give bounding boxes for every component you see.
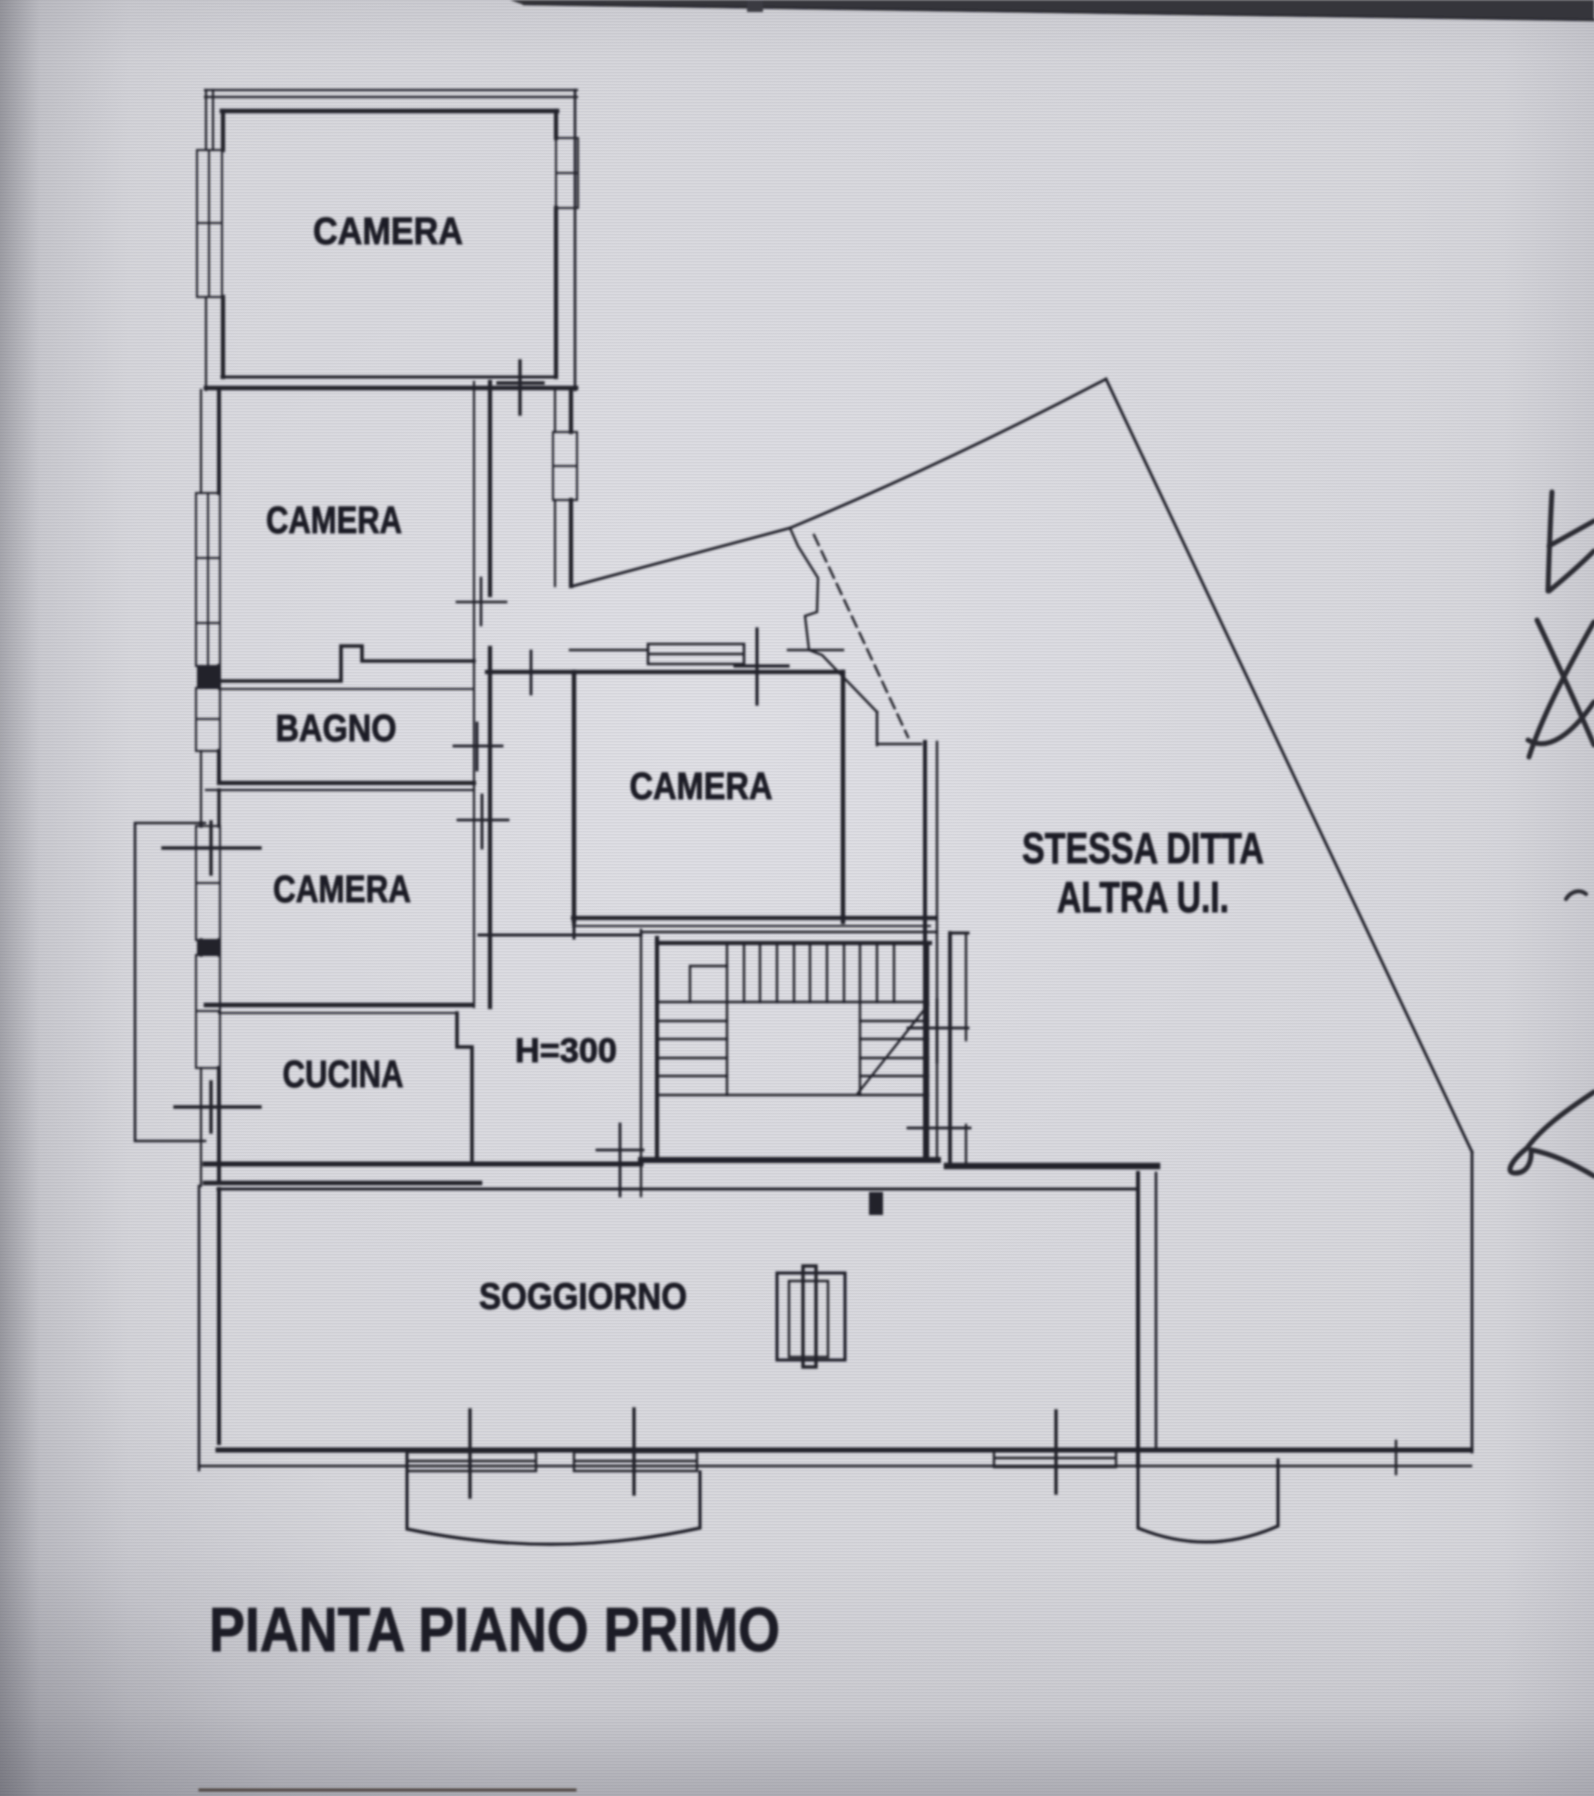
- svg-text:H=300: H=300: [515, 1032, 617, 1070]
- svg-text:ALTRA U.I.: ALTRA U.I.: [1057, 873, 1229, 922]
- svg-text:PIANTA PIANO PRIMO: PIANTA PIANO PRIMO: [209, 1596, 780, 1665]
- svg-text:CAMERA: CAMERA: [630, 766, 773, 808]
- svg-text:CUCINA: CUCINA: [283, 1054, 404, 1096]
- svg-text:CAMERA: CAMERA: [313, 211, 463, 253]
- svg-text:CAMERA: CAMERA: [266, 500, 402, 542]
- svg-text:SOGGIORNO: SOGGIORNO: [479, 1276, 687, 1317]
- svg-text:BAGNO: BAGNO: [276, 708, 397, 750]
- svg-text:STESSA DITTA: STESSA DITTA: [1022, 824, 1264, 873]
- svg-text:CAMERA: CAMERA: [273, 869, 411, 911]
